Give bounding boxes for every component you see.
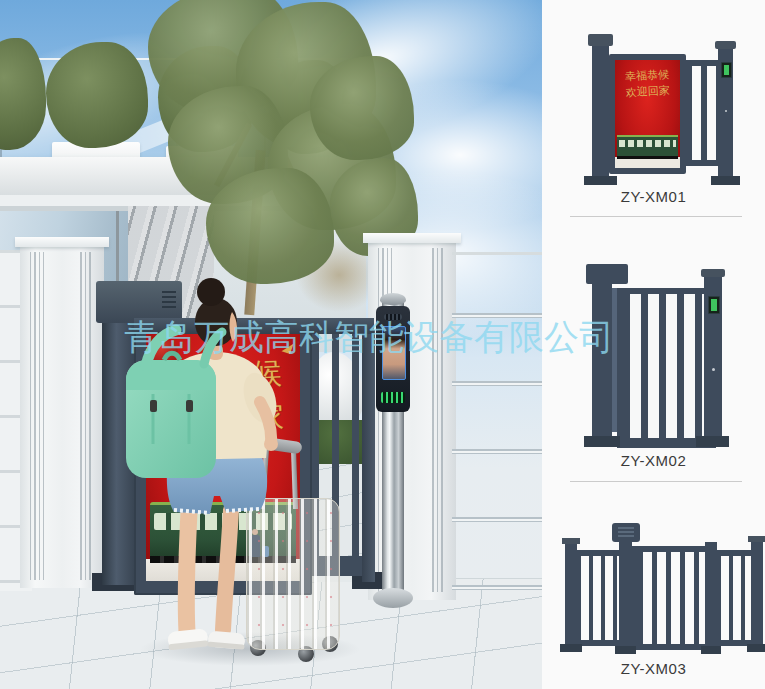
frayed-hem [174, 509, 259, 513]
product-label: ZY-XM02 [542, 452, 765, 469]
product-showcase-image: 幸福恭候 欢迎回家 [0, 0, 765, 689]
gate-post-cap [701, 269, 725, 277]
wall-pillar-left [20, 244, 104, 588]
poster-greeting-text: 幸福恭候 欢迎回家 [615, 66, 680, 101]
fence-post [705, 542, 717, 648]
post-base [696, 436, 729, 447]
gate-end-stile [362, 330, 375, 582]
ad-panel-frame: 幸福恭候 欢迎回家 [609, 54, 686, 174]
post-base [584, 436, 620, 447]
keypad [381, 392, 405, 403]
post-base [747, 644, 765, 652]
olive-tree-foliage [206, 168, 334, 284]
gate-vertical-bars [686, 66, 720, 166]
gate-post-cap [715, 41, 736, 49]
divider [570, 481, 742, 482]
backpack-handle [164, 353, 180, 360]
poster-train-illustration [617, 135, 678, 159]
gate-post-cap [588, 34, 613, 46]
fence-section [577, 550, 619, 646]
access-keypad-icon [721, 62, 732, 78]
leg [223, 510, 231, 630]
post-base [711, 176, 740, 185]
keyhole [712, 368, 715, 371]
pillar-cap [15, 237, 109, 247]
keyhole [725, 110, 727, 112]
hand [264, 437, 278, 451]
fence-post [619, 540, 632, 648]
pedestal-cap [380, 293, 406, 305]
gate-post [592, 40, 609, 178]
gate-motor-box [586, 264, 628, 284]
product-label: ZY-XM01 [542, 188, 765, 205]
leg [186, 512, 189, 632]
gate-bar-panel [617, 288, 716, 448]
fence-post [565, 542, 577, 646]
woman-with-backpack [110, 272, 280, 667]
post-base [584, 176, 617, 185]
backpack-buckle [150, 400, 157, 412]
product-label: ZY-XM03 [542, 660, 765, 677]
hair-bun [197, 278, 225, 306]
pedestal-base [373, 588, 413, 608]
speaker-grille [384, 314, 402, 320]
perimeter-wall-right [452, 252, 542, 603]
gate-post [592, 282, 612, 438]
product-list: 幸福恭候 欢迎回家 ZY-XM01 [542, 0, 765, 689]
access-keypad-icon [708, 296, 720, 314]
fence-post-cap [748, 536, 765, 542]
backpack-buckle [186, 400, 193, 412]
fence-post [751, 540, 763, 648]
gate-bottom-rail [686, 160, 720, 166]
ad-poster: 幸福恭候 欢迎回家 [615, 60, 680, 168]
sneaker [167, 628, 209, 650]
fence-post-cap [562, 538, 580, 544]
olive-tree-foliage [310, 56, 414, 160]
sneaker [207, 631, 245, 650]
scene-photo: 幸福恭候 欢迎回家 [0, 0, 542, 689]
pillar-cap [363, 233, 461, 243]
fence-section [717, 550, 751, 646]
post-base [615, 646, 636, 654]
post-base [560, 644, 582, 652]
post-base [701, 646, 721, 654]
divider [570, 216, 742, 217]
face-recognition-terminal [376, 306, 410, 412]
face-recognition-screen [382, 326, 406, 380]
poster-line2: 欢迎回家 [615, 82, 680, 101]
rooftop-shrub [46, 42, 148, 148]
